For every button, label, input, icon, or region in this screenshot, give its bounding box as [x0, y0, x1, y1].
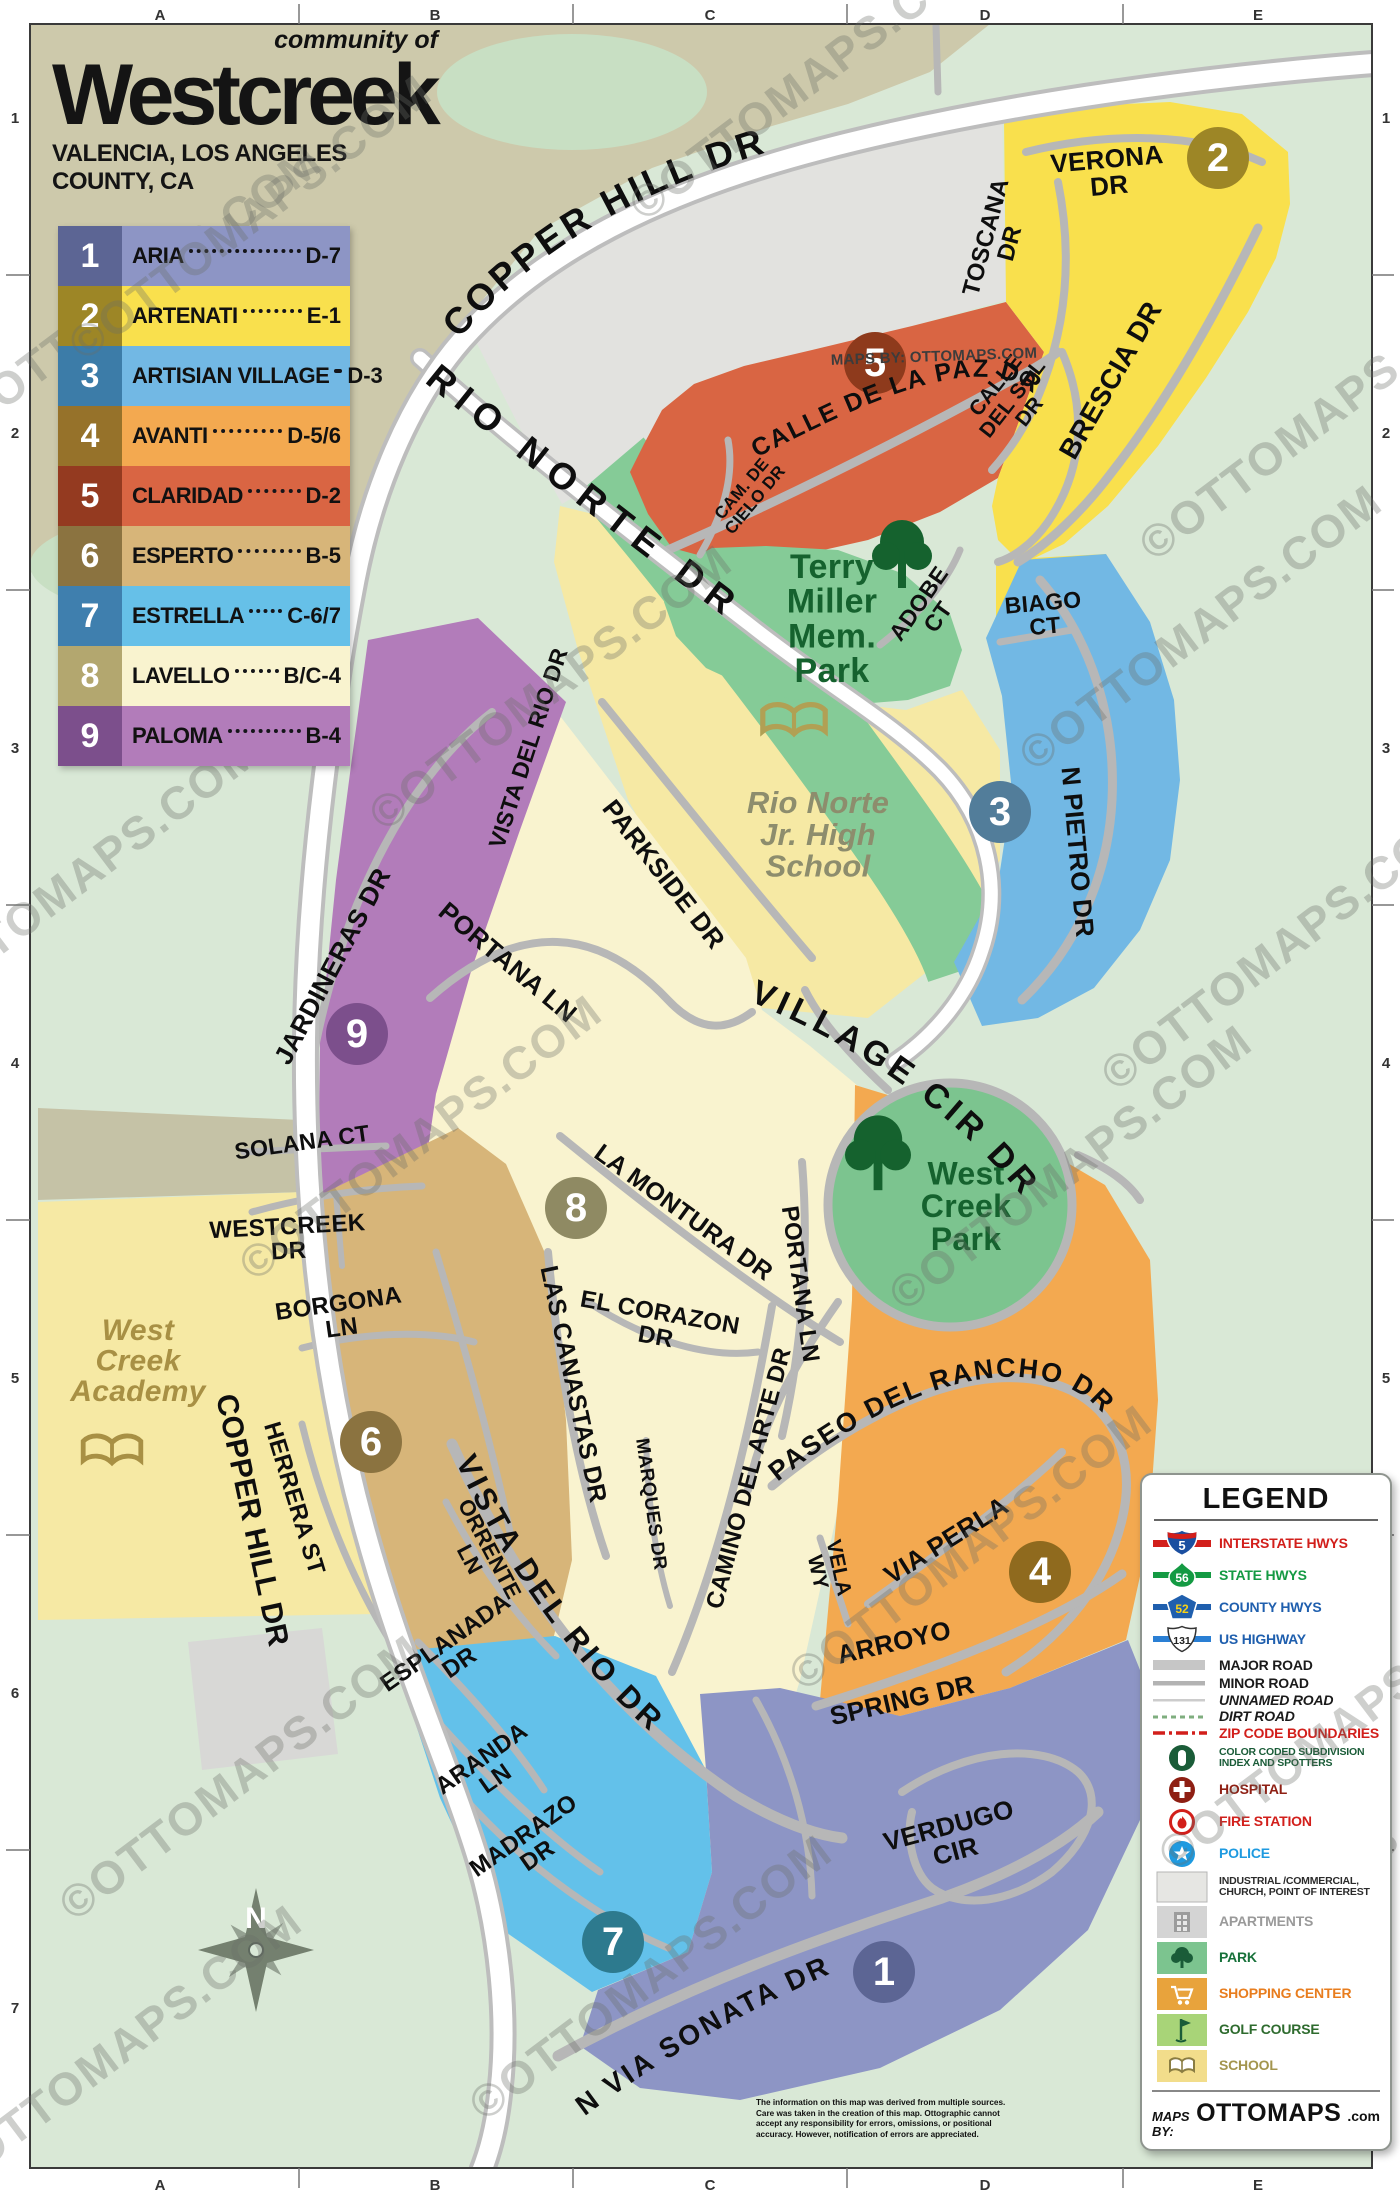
index-row: 8 LAVELLO B/C-4 — [58, 646, 350, 706]
svg-text:9: 9 — [346, 1012, 368, 1056]
svg-text:52: 52 — [1175, 1602, 1189, 1616]
svg-text:56: 56 — [1175, 1571, 1189, 1585]
grid-number: 6 — [11, 1685, 19, 1702]
legend-item: COLOR CODED SUBDIVISION INDEX AND SPOTTE… — [1152, 1743, 1380, 1773]
interstate-icon: 5 — [1152, 1528, 1212, 1558]
legend-item-label: APARTMENTS — [1219, 1914, 1313, 1929]
grid-number: 3 — [11, 740, 19, 757]
hospital-icon — [1152, 1775, 1212, 1805]
legend-item-label: INTERSTATE HWYS — [1219, 1536, 1348, 1551]
us-icon: 131 — [1152, 1624, 1212, 1654]
legend-item: MINOR ROAD — [1152, 1676, 1380, 1691]
index-grid-ref: C-6/7 — [287, 603, 341, 629]
grid-letter: A — [155, 7, 166, 24]
grid-letter: E — [1253, 2177, 1263, 2194]
index-name: ARTENATI — [132, 303, 238, 329]
index-leader-dots — [334, 369, 342, 373]
svg-text:3: 3 — [989, 790, 1011, 834]
credit-suffix: .com — [1347, 2108, 1380, 2124]
minor-road-icon — [1152, 1677, 1212, 1689]
index-number: 9 — [58, 706, 122, 766]
index-name: PALOMA — [132, 723, 223, 749]
subdivision-spotter: 2 — [1187, 127, 1249, 189]
legend-item-label: COUNTY HWYS — [1219, 1600, 1322, 1615]
apartments-icon — [1152, 1905, 1212, 1939]
svg-text:1: 1 — [873, 1950, 895, 1994]
subdivision-spotter: 8 — [545, 1177, 607, 1239]
index-number: 1 — [58, 226, 122, 286]
legend-item-label: POLICE — [1219, 1846, 1270, 1861]
page-subtitle: VALENCIA, LOS ANGELES COUNTY, CA — [52, 140, 452, 196]
legend-items: 5 INTERSTATE HWYS56 STATE HWYS52 COUNTY … — [1152, 1528, 1380, 2083]
grid-letter: E — [1253, 7, 1263, 24]
legend-item-label: GOLF COURSE — [1219, 2022, 1319, 2037]
legend-item: SHOPPING CENTER — [1152, 1977, 1380, 2011]
legend-item: 131 US HIGHWAY — [1152, 1624, 1380, 1654]
svg-text:6: 6 — [360, 1420, 382, 1464]
index-row: 2 ARTENATI E-1 — [58, 286, 350, 346]
index-row: 7 ESTRELLA C-6/7 — [58, 586, 350, 646]
index-leader-dots — [235, 669, 279, 673]
svg-text:131: 131 — [1173, 1635, 1191, 1647]
grid-number: 5 — [11, 1370, 19, 1387]
index-number: 5 — [58, 466, 122, 526]
grid-number: 5 — [1382, 1370, 1390, 1387]
map-label: Rio NorteJr. HighSchool — [747, 785, 889, 883]
index-name: ESTRELLA — [132, 603, 244, 629]
legend-item-label: COLOR CODED SUBDIVISION INDEX AND SPOTTE… — [1219, 1747, 1364, 1769]
legend-divider — [1154, 1519, 1378, 1521]
credit-prefix: MAPS BY: — [1152, 2109, 1190, 2139]
zip-icon — [1152, 1727, 1212, 1739]
index-grid-ref: B-4 — [306, 723, 341, 749]
svg-text:4: 4 — [1029, 1550, 1052, 1594]
police-icon — [1152, 1839, 1212, 1869]
legend-item-label: HOSPITAL — [1219, 1782, 1287, 1797]
legend-title: LEGEND — [1152, 1483, 1380, 1516]
grid-number: 1 — [11, 110, 19, 127]
legend-item-label: INDUSTRIAL /COMMERCIAL, CHURCH, POINT OF… — [1219, 1876, 1370, 1898]
svg-text:7: 7 — [602, 1920, 624, 1964]
legend-panel: LEGEND 5 INTERSTATE HWYS56 STATE HWYS52 … — [1140, 1473, 1392, 2151]
subdivision-spotter: 6 — [340, 1411, 402, 1473]
subdivision-index: 1 ARIA D-7 2 ARTENATI E-1 3 ARTISIAN VIL… — [58, 226, 350, 766]
golf-icon — [1152, 2013, 1212, 2047]
legend-item: 5 INTERSTATE HWYS — [1152, 1528, 1380, 1558]
disclaimer-text: The information on this map was derived … — [756, 2098, 1020, 2141]
county-icon: 52 — [1152, 1592, 1212, 1622]
index-number: 8 — [58, 646, 122, 706]
shopping-icon — [1152, 1977, 1212, 2011]
legend-item: SCHOOL — [1152, 2049, 1380, 2083]
grid-number: 2 — [1382, 425, 1390, 442]
index-grid-ref: B-5 — [306, 543, 341, 569]
unnamed-road-icon — [1152, 1695, 1212, 1705]
page-title: Westcreek — [52, 55, 452, 137]
index-leader-dots — [249, 609, 282, 613]
legend-item-label: PARK — [1219, 1950, 1257, 1965]
legend-item-label: US HIGHWAY — [1219, 1632, 1306, 1647]
index-row: 9 PALOMA B-4 — [58, 706, 350, 766]
index-leader-dots — [243, 309, 302, 313]
legend-item: HOSPITAL — [1152, 1775, 1380, 1805]
index-number: 2 — [58, 286, 122, 346]
index-row: 1 ARIA D-7 — [58, 226, 350, 286]
grid-number: 4 — [11, 1055, 20, 1072]
industrial-icon — [1152, 1871, 1212, 1903]
legend-item-label: STATE HWYS — [1219, 1568, 1307, 1583]
legend-item: 52 COUNTY HWYS — [1152, 1592, 1380, 1622]
grid-letter: D — [980, 7, 991, 24]
index-leader-dots — [213, 429, 283, 433]
credit-brand: OTTOMAPS — [1196, 2099, 1341, 2128]
grid-number: 3 — [1382, 740, 1390, 757]
legend-item: 56 STATE HWYS — [1152, 1560, 1380, 1590]
grid-letter: A — [155, 2177, 166, 2194]
grid-number: 4 — [1382, 1055, 1391, 1072]
legend-item-label: SCHOOL — [1219, 2058, 1278, 2073]
index-grid-ref: D-2 — [306, 483, 341, 509]
legend-item: GOLF COURSE — [1152, 2013, 1380, 2047]
major-road-icon — [1152, 1656, 1212, 1674]
grid-letter: B — [430, 2177, 441, 2194]
index-name: ESPERTO — [132, 543, 233, 569]
index-number: 4 — [58, 406, 122, 466]
grid-number: 1 — [1382, 110, 1390, 127]
index-name: CLARIDAD — [132, 483, 243, 509]
legend-item-label: FIRE STATION — [1219, 1814, 1312, 1829]
subdivision-spotter: 3 — [969, 781, 1031, 843]
legend-credit: MAPS BY: OTTOMAPS .com — [1152, 2090, 1380, 2139]
index-leader-dots — [189, 249, 301, 253]
fire-icon — [1152, 1807, 1212, 1837]
index-number: 7 — [58, 586, 122, 646]
index-grid-ref: E-1 — [307, 303, 341, 329]
legend-item-label: MAJOR ROAD — [1219, 1658, 1313, 1673]
legend-item: PARK — [1152, 1941, 1380, 1975]
index-leader-dots — [238, 549, 300, 553]
index-row: 3 ARTISIAN VILLAGE D-3 — [58, 346, 350, 406]
subdivision-spotter: 9 — [326, 1003, 388, 1065]
legend-item-label: ZIP CODE BOUNDARIES — [1219, 1726, 1379, 1741]
legend-item: FIRE STATION — [1152, 1807, 1380, 1837]
index-name: LAVELLO — [132, 663, 230, 689]
index-name: ARTISIAN VILLAGE — [132, 363, 329, 389]
state-icon: 56 — [1152, 1560, 1212, 1590]
grid-number: 7 — [11, 2000, 19, 2017]
legend-item: MAJOR ROAD — [1152, 1656, 1380, 1674]
index-name: ARIA — [132, 243, 184, 269]
legend-item-label: SHOPPING CENTER — [1219, 1986, 1351, 2001]
legend-item: APARTMENTS — [1152, 1905, 1380, 1939]
grid-letter: C — [705, 2177, 716, 2194]
index-grid-ref: D-3 — [347, 363, 382, 389]
grid-letter: B — [430, 7, 441, 24]
index-leader-dots — [228, 729, 301, 733]
school-icon — [1152, 2049, 1212, 2083]
legend-item-label: MINOR ROAD — [1219, 1676, 1309, 1691]
subdivision-spotter: 4 — [1009, 1541, 1071, 1603]
grid-letter: C — [705, 7, 716, 24]
legend-item-label: UNNAMED ROAD — [1219, 1693, 1333, 1708]
spotter-icon — [1152, 1743, 1212, 1773]
index-grid-ref: B/C-4 — [284, 663, 341, 689]
dirt-road-icon — [1152, 1712, 1212, 1722]
grid-letter: D — [980, 2177, 991, 2194]
grid-number: 2 — [11, 425, 19, 442]
map-label: TerryMillerMem.Park — [787, 548, 878, 690]
index-name: AVANTI — [132, 423, 208, 449]
index-grid-ref: D-5/6 — [287, 423, 341, 449]
legend-item-label: DIRT ROAD — [1219, 1709, 1295, 1724]
index-number: 3 — [58, 346, 122, 406]
legend-item: UNNAMED ROAD — [1152, 1693, 1380, 1708]
title-block: community of Westcreek VALENCIA, LOS ANG… — [52, 26, 452, 196]
index-leader-dots — [248, 489, 301, 493]
map-page: 123456789 VERONADRTOSCANADRCALLEDEL SOLD… — [0, 0, 1400, 2194]
legend-item: POLICE — [1152, 1839, 1380, 1869]
index-number: 6 — [58, 526, 122, 586]
index-row: 6 ESPERTO B-5 — [58, 526, 350, 586]
svg-text:2: 2 — [1207, 136, 1229, 180]
legend-item: ZIP CODE BOUNDARIES — [1152, 1726, 1380, 1741]
index-grid-ref: D-7 — [306, 243, 341, 269]
index-row: 5 CLARIDAD D-2 — [58, 466, 350, 526]
svg-text:5: 5 — [1178, 1538, 1185, 1553]
legend-item: DIRT ROAD — [1152, 1709, 1380, 1724]
index-row: 4 AVANTI D-5/6 — [58, 406, 350, 466]
svg-text:8: 8 — [565, 1186, 587, 1230]
park-icon — [1152, 1941, 1212, 1975]
legend-item: INDUSTRIAL /COMMERCIAL, CHURCH, POINT OF… — [1152, 1871, 1380, 1903]
subdivision-spotter: 1 — [853, 1941, 915, 2003]
